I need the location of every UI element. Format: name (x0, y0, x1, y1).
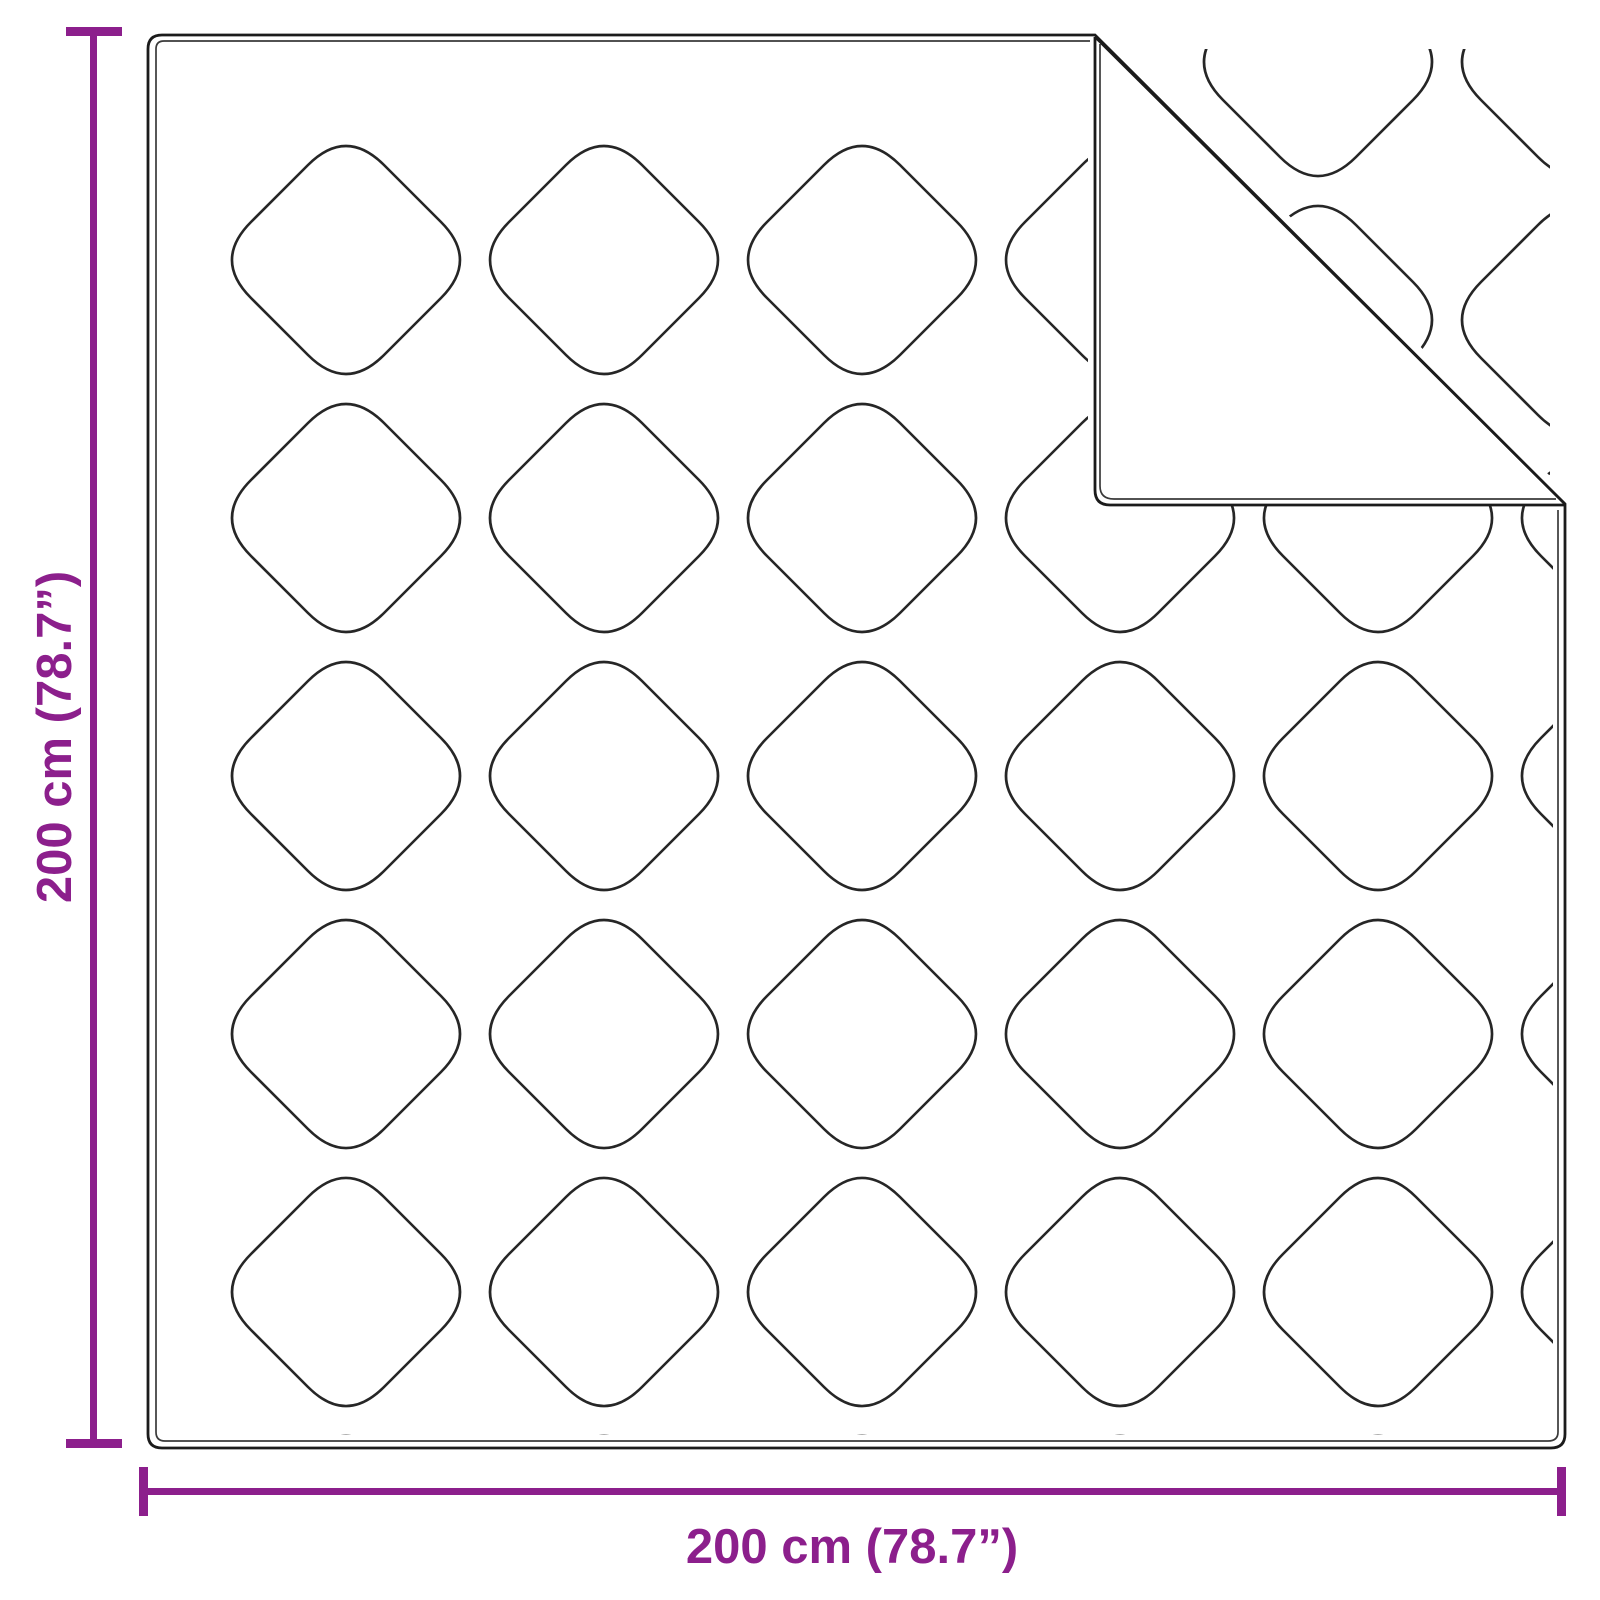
stitch-diamond (1264, 1436, 1492, 1600)
stitch-diamond (490, 1436, 718, 1600)
stitch-diamond (1462, 0, 1600, 176)
horizontal-dimension-label: 200 cm (78.7”) (686, 1519, 1018, 1575)
blanket-body (148, 35, 1565, 1448)
stitch-diamond (1204, 0, 1432, 176)
vertical-dimension-line (90, 29, 97, 1445)
stitch-diamond (1462, 206, 1600, 434)
vertical-dimension-label: 200 cm (78.7”) (27, 571, 83, 903)
blanket-dimension-diagram: 200 cm (78.7”) 200 cm (78.7”) (0, 0, 1600, 1600)
stitch-diamond (232, 1436, 460, 1600)
stitch-diamond (1522, 1436, 1600, 1600)
vertical-dimension-cap-bottom (66, 1439, 122, 1448)
stitch-diamond (1522, 146, 1600, 374)
stitch-diamond (748, 1436, 976, 1600)
horizontal-dimension-cap-right (1557, 1467, 1566, 1516)
stitch-diamond (1006, 1436, 1234, 1600)
blanket-illustration (0, 0, 1600, 1600)
horizontal-dimension-line (143, 1488, 1563, 1495)
